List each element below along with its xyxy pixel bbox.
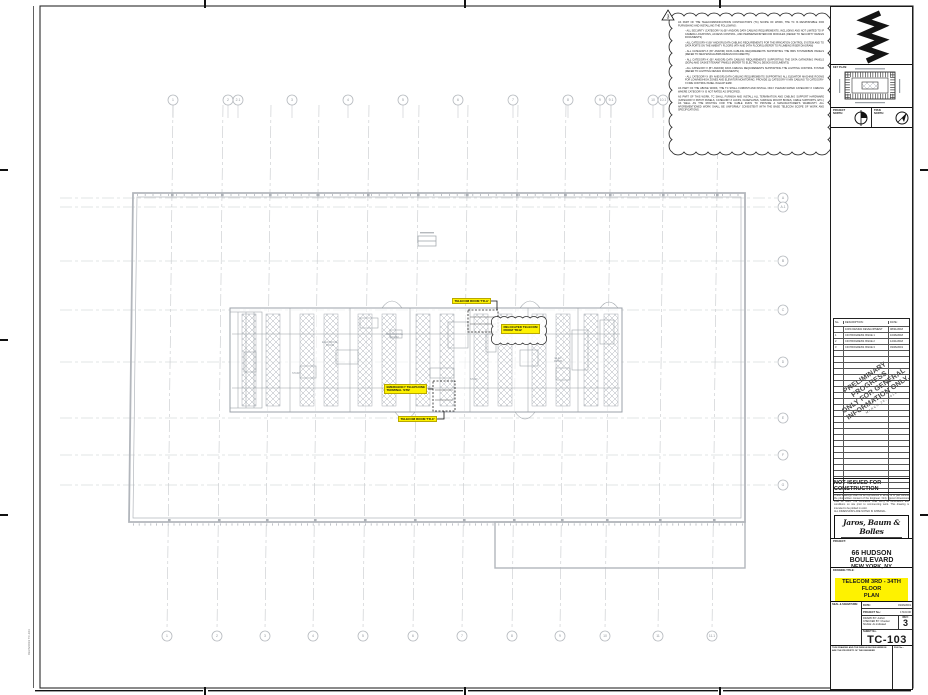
rev-col-desc: DESCRIPTION: [844, 321, 889, 324]
true-north-cell: TRUE NORTH: [872, 108, 912, 127]
project-name: 66 HUDSON BOULEVARD [831, 550, 912, 564]
callout-telecom-room-c: TELECOM ROOM 'TR-C' [398, 416, 437, 422]
project-section: PROJECT: 66 HUDSON BOULEVARD NEW YORK, N… [831, 538, 912, 568]
grid-bubble-label: 8 [567, 98, 569, 102]
callout-telecom-room-a: TELECOM ROOM 'TR-A' [452, 298, 491, 304]
grid-bubble-label: 10 [651, 98, 655, 102]
true-north-label: TRUE NORTH: [874, 109, 884, 115]
svg-text:3: 3 [667, 15, 670, 21]
true-north-icon [894, 109, 910, 127]
cloud-note-text: AS PART OF THE TELECOMMUNICATIONS CONTRA… [678, 21, 824, 151]
cloud-note-paragraph: - ALL CATEGORY-X (BY AND/OR) DATA CABLIN… [678, 58, 824, 65]
grid-bubble-label: 11.1 [709, 634, 715, 638]
callout-emergency-telephone: EMERGENCY TELEPHONE TERMINAL 'ETB' [384, 384, 427, 394]
revision-row [834, 464, 909, 470]
revision-row: 3CD PROGRESS ISSUE 303/26/2019 [834, 344, 909, 350]
cloud-note-paragraph: - ALL CATEGORY-X (BY AND/OR) DATA CABLIN… [678, 41, 824, 48]
revision-row [834, 458, 909, 464]
room-label: STAIR [292, 373, 299, 376]
rev-col-no: No. [834, 321, 844, 324]
cloud-note-paragraph: AS PART OF THE TELECOMMUNICATIONS CONTRA… [678, 21, 824, 28]
plot-stamp: 03/26/2019 TC-103 [27, 629, 31, 655]
grid-bubble-label: 2 [227, 98, 229, 102]
grid-bubble-label: F [782, 453, 784, 457]
room-label: MECHANICAL ROOM [386, 334, 403, 340]
drawing-sheet: 03/26/2019 TC-103 123456789101111.1122.1… [0, 0, 928, 695]
grid-bubble-label: 6 [457, 98, 459, 102]
project-label: PROJECT: [831, 539, 912, 543]
drawing-title-section: DRAWING TITLE: TELECOM 3RD - 34TH FLOOR … [831, 567, 912, 602]
key-plan-label: KEY PLAN: [833, 66, 847, 69]
cloud-note-paragraph: AS PART OF THIS WORK, TC SHALL FURNISH A… [678, 96, 824, 112]
footer-right-note: FILE No.: [894, 647, 911, 650]
seal-label: SEAL & SIGNATURE: [831, 602, 861, 607]
drawing-title-label: DRAWING TITLE: [831, 568, 912, 572]
project-north-icon [853, 109, 869, 127]
cloud-note-paragraph: - ALL SECURITY (CATEGORY-X) (BY AND/OR) … [678, 30, 824, 40]
not-issued-banner: NOT ISSUED FOR CONSTRUCTION [833, 478, 910, 493]
seal-cell: SEAL & SIGNATURE: [831, 602, 862, 646]
room-label: STAIR [470, 379, 477, 382]
grid-bubble-label: 6 [412, 634, 414, 638]
grid-bubble-label: G [782, 483, 785, 487]
grid-bubble-label: 4 [347, 98, 349, 102]
grid-bubble-label: 1 [172, 98, 174, 102]
revision-row [834, 452, 909, 458]
revision-row: 1CD PROGRESS ISSUE 110/26/2018 [834, 332, 909, 338]
key-plan-icon [831, 65, 912, 108]
project-no-row: PROJECT No.:17103.00 [862, 609, 912, 616]
grid-bubble-label: 1 [166, 634, 168, 638]
rev-col-date: DATE: [889, 321, 909, 324]
spiral-logo-icon [831, 7, 912, 65]
grid-bubble-label: 5 [362, 634, 364, 638]
project-north-cell: PROJECT NORTH: [831, 108, 872, 127]
grid-bubble-label: 8 [511, 634, 513, 638]
engineer-name: Jaros, Baum & Bolles [835, 518, 908, 536]
revision-row [834, 470, 909, 476]
revision-row [834, 446, 909, 452]
grid-bubble-label: 9.1 [609, 98, 614, 102]
cloud-note-paragraph: AS PART OF THE ABOVE WORK, THE TC SHALL … [678, 87, 824, 94]
grid-bubble-label: 9 [599, 98, 601, 102]
revision-row: 100% DESIGN DEVELOPMENT08/31/2018 [834, 326, 909, 332]
scale: SCALE: As indicated [863, 623, 897, 626]
project-north-label: PROJECT NORTH: [833, 109, 845, 115]
rev-number: 3 [899, 619, 912, 628]
cloud-note-paragraph: - ALL CATEGORY-X (BY AND/OR) DATA CABLIN… [678, 50, 824, 57]
cloud-note-paragraph: - ALL CATEGORY-X (BY AND/OR) DATA CABLIN… [678, 67, 824, 74]
disclaimer-text: These drawings shall not be reproduced i… [834, 494, 909, 513]
grid-bubble-label: 2.1 [236, 98, 241, 102]
grid-bubble-label: 3 [264, 634, 266, 638]
revision-table-header: No. DESCRIPTION: DATE: [834, 319, 909, 326]
grid-bubble-label: 9 [559, 634, 561, 638]
grid-bubble-label: 7 [512, 98, 514, 102]
north-arrows-box: PROJECT NORTH: TRUE NORTH: [831, 108, 912, 128]
grid-bubble-label: 4 [312, 634, 314, 638]
engineer-logo-box: Jaros, Baum & Bolles CONSULTING ENGINEER… [834, 515, 909, 539]
binding-edge [33, 6, 34, 688]
roof-feature [418, 232, 436, 246]
grid-bubble-label: 11 [656, 634, 660, 638]
revision-row [834, 440, 909, 446]
drawn-scale-rev-row: DRAWN BY: Author CHECKED BY: Checker SCA… [862, 616, 912, 630]
room-label: ELECTRICAL ROOM [322, 342, 338, 348]
grid-bubble-label: 7 [461, 634, 463, 638]
grid-bubble-label: 10 [603, 634, 607, 638]
grid-bubble-label: A.1 [780, 205, 785, 209]
drawing-title: TELECOM 3RD - 34TH FLOOR PLAN [835, 578, 908, 601]
cloud-note-paragraph: - ALL CATEGORY-X (BY AND/OR) DATA CABLIN… [678, 75, 824, 85]
callout-relocated-room: RELOCATED TELECOM ROOM 'TR-B' [501, 324, 540, 334]
titleblock-footer: THIS DRAWING AND THE DESIGN SHOWN HEREON… [831, 645, 912, 689]
grid-bubble-label: 5 [402, 98, 404, 102]
title-block: KEY PLAN: PROJECT NORTH: [830, 6, 913, 690]
key-plan-box: KEY PLAN: [831, 65, 912, 108]
grid-bubble-label: 2 [216, 634, 218, 638]
grid-bubble-label: 3 [291, 98, 293, 102]
seal-meta-section: SEAL & SIGNATURE: DATE:03/26/2019 PROJEC… [831, 601, 912, 646]
grid-bubble-label: 10.1 [660, 98, 667, 102]
footer-left-note: THIS DRAWING AND THE DESIGN SHOWN HEREON… [832, 647, 891, 652]
revision-row: 2CD PROGRESS ISSUE 212/21/2018 [834, 338, 909, 344]
revision-row [834, 434, 909, 440]
room-label: ELEC ROOM [554, 358, 562, 364]
building-core [230, 301, 622, 419]
architect-logo-box [831, 7, 912, 65]
date-row: DATE:03/26/2019 [862, 602, 912, 609]
